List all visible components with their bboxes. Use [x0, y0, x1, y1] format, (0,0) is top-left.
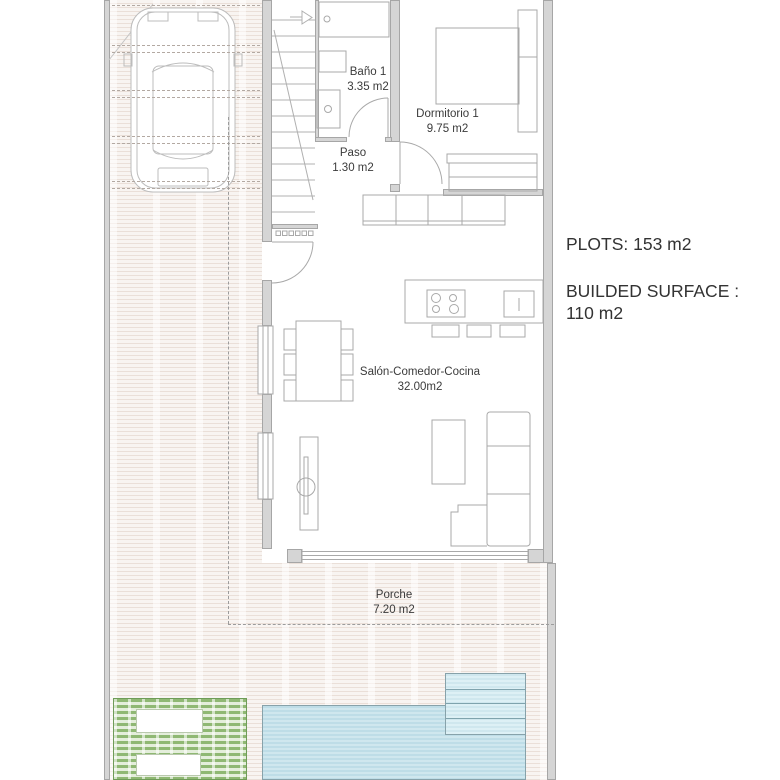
window	[258, 326, 273, 394]
bed	[436, 28, 519, 104]
shoe-rack-squares	[276, 231, 313, 236]
paving-joint	[112, 45, 260, 46]
paving-joint	[112, 5, 260, 6]
kitchen-island	[405, 280, 543, 337]
plots-text: PLOTS: 153 m2	[566, 234, 776, 256]
room-label-porche: Porche 7.20 m2	[313, 588, 475, 618]
paving-joint	[112, 188, 260, 189]
room-name: Paso	[303, 146, 403, 161]
room-area: 3.35 m2	[318, 80, 418, 95]
tv-unit	[297, 437, 318, 530]
entrance-door	[272, 242, 313, 283]
paving-joint	[112, 90, 260, 91]
room-label-salon: Salón-Comedor-Cocina 32.00m2	[320, 365, 520, 395]
room-area: 32.00m2	[320, 380, 520, 395]
floor-plan: Baño 1 3.35 m2 Dormitorio 1 9.75 m2 Paso…	[0, 0, 780, 780]
nightstand	[518, 10, 537, 132]
paving-joint	[112, 97, 260, 98]
stool	[432, 325, 459, 337]
built-surface-label: BUILDED SURFACE :	[566, 281, 776, 303]
info-panel: PLOTS: 153 m2 BUILDED SURFACE : 110 m2	[566, 234, 776, 325]
room-label-dormitorio: Dormitorio 1 9.75 m2	[385, 107, 510, 137]
room-label-paso: Paso 1.30 m2	[303, 146, 403, 176]
room-label-bano: Baño 1 3.35 m2	[318, 65, 418, 95]
paving-joint	[112, 143, 260, 144]
room-name: Salón-Comedor-Cocina	[320, 365, 520, 380]
porch-boundary-horizontal	[228, 624, 554, 625]
room-name: Dormitorio 1	[385, 107, 510, 122]
stool	[500, 325, 525, 337]
paving-joint	[112, 52, 260, 53]
sliding-glass-door	[302, 549, 528, 563]
wardrobe	[447, 154, 537, 191]
stool	[467, 325, 491, 337]
bedroom-door	[400, 142, 442, 184]
laundry-counter	[363, 195, 505, 225]
room-area: 9.75 m2	[385, 122, 510, 137]
built-surface-value: 110 m2	[566, 303, 776, 325]
porch-boundary-vertical	[228, 117, 229, 624]
shower	[319, 2, 389, 37]
stairs	[272, 11, 315, 212]
room-area: 7.20 m2	[313, 603, 475, 618]
paving-joint	[112, 181, 260, 182]
washbasin	[317, 90, 340, 128]
paving-joint	[112, 136, 260, 137]
sofa	[451, 412, 530, 546]
window	[258, 433, 273, 499]
room-name: Porche	[313, 588, 475, 603]
bathroom-door	[349, 98, 388, 137]
room-area: 1.30 m2	[303, 161, 403, 176]
car	[124, 8, 242, 192]
coffee-table	[432, 420, 465, 484]
room-name: Baño 1	[318, 65, 418, 80]
